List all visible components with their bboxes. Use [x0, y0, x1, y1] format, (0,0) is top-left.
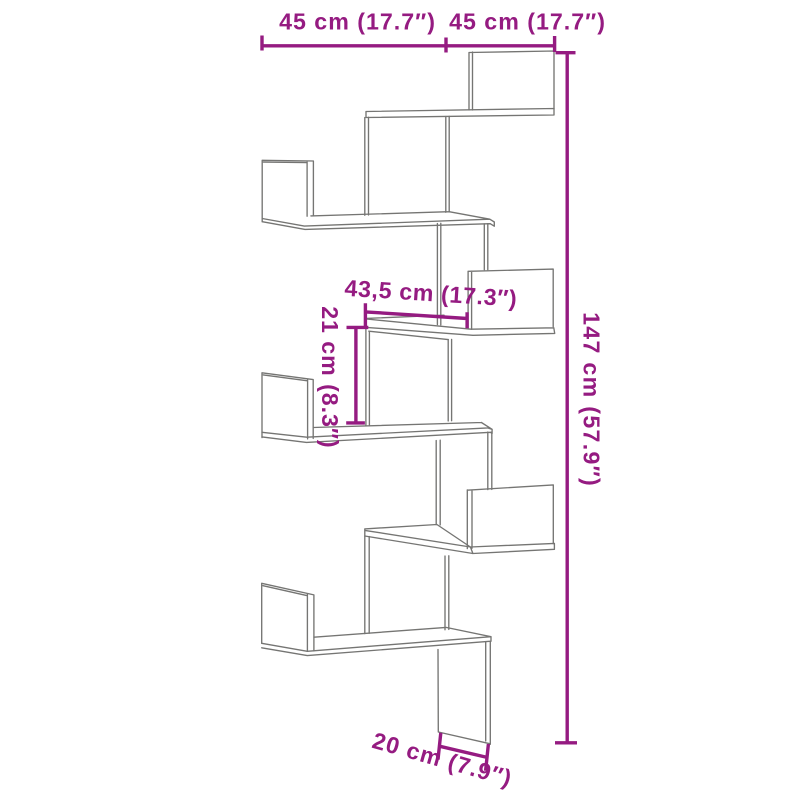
svg-text:21 cm (8.3″): 21 cm (8.3″) — [317, 306, 343, 448]
svg-text:147 cm (57.9″): 147 cm (57.9″) — [578, 312, 604, 487]
svg-text:45 cm (17.7″): 45 cm (17.7″) — [279, 9, 436, 35]
svg-text:45 cm (17.7″): 45 cm (17.7″) — [449, 9, 606, 35]
